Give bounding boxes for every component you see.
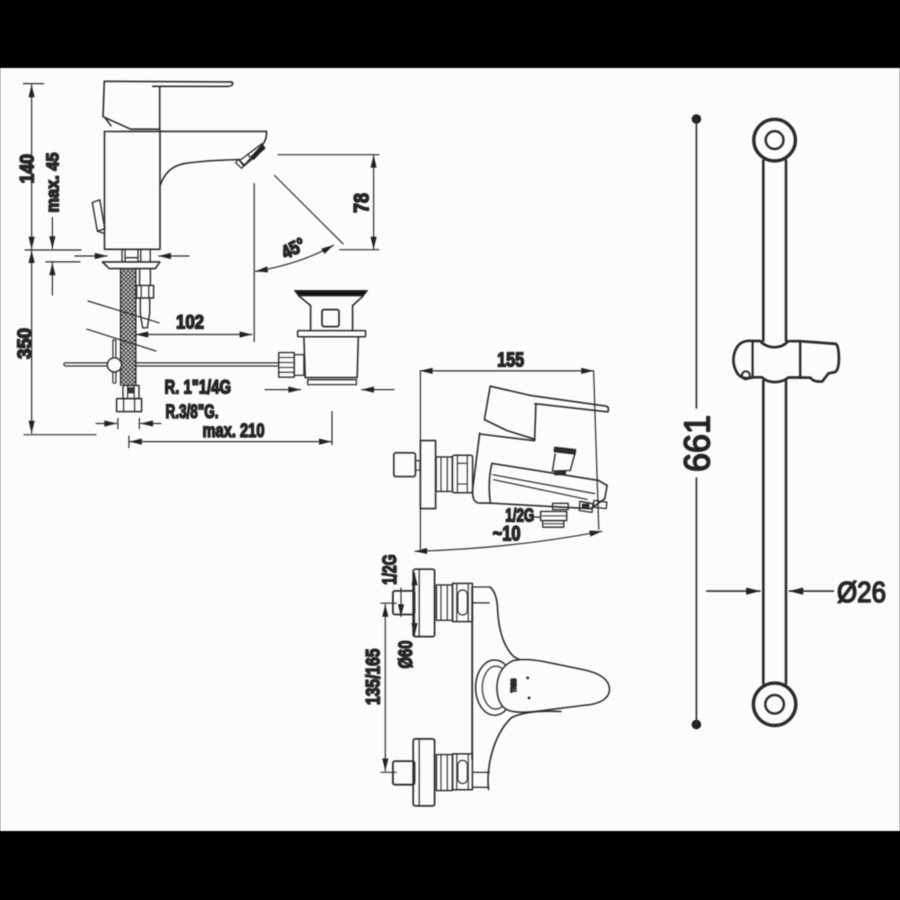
svg-text:TRES: TRES bbox=[511, 678, 518, 692]
svg-text:~10: ~10 bbox=[493, 522, 521, 545]
svg-text:R.3/8"G.: R.3/8"G. bbox=[166, 402, 219, 423]
svg-text:135/165: 135/165 bbox=[363, 648, 385, 705]
svg-text:350: 350 bbox=[15, 328, 36, 359]
svg-text:Ø26: Ø26 bbox=[837, 577, 886, 609]
svg-text:140: 140 bbox=[18, 154, 39, 184]
svg-text:45°: 45° bbox=[278, 234, 309, 264]
svg-text:max. 210: max. 210 bbox=[203, 421, 265, 442]
svg-text:R. 1"1/4G: R. 1"1/4G bbox=[165, 378, 232, 399]
svg-text:155: 155 bbox=[497, 350, 524, 372]
svg-text:102: 102 bbox=[176, 313, 204, 334]
svg-text:1/2G: 1/2G bbox=[379, 554, 401, 585]
svg-text:max. 45: max. 45 bbox=[43, 152, 63, 212]
svg-text:Ø60: Ø60 bbox=[395, 640, 417, 668]
svg-text:661: 661 bbox=[677, 415, 718, 472]
svg-text:78: 78 bbox=[351, 193, 374, 213]
